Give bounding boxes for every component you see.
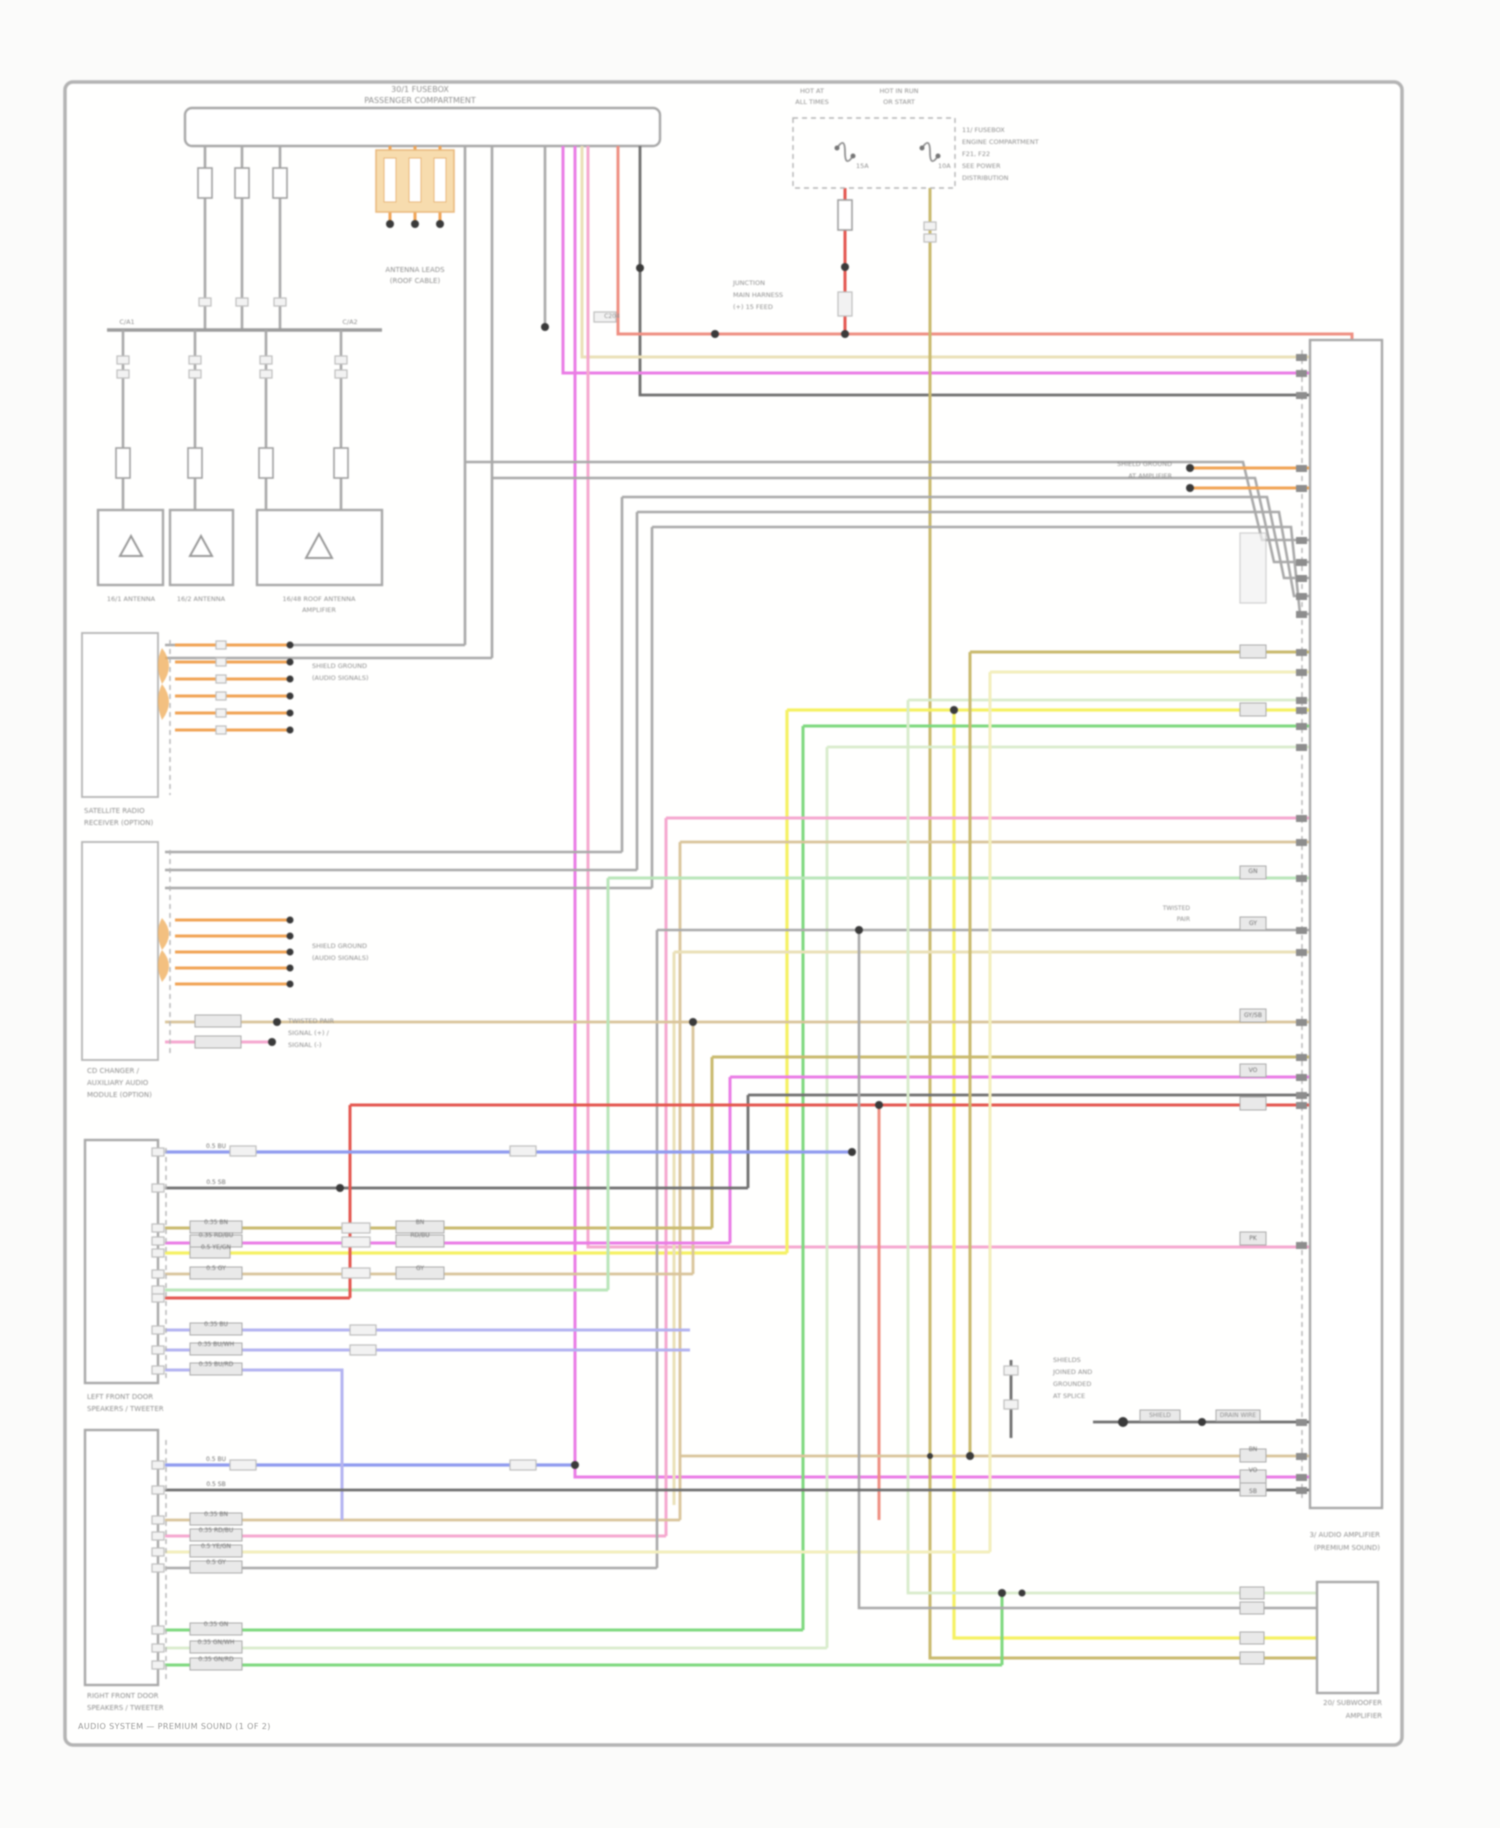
diagram-label-43: SHIELD — [1149, 1412, 1171, 1419]
audio-amplifier-box — [1310, 340, 1382, 1508]
diagram-label-26: HOT AT — [800, 87, 824, 95]
diagram-label-1: PASSENGER COMPARTMENT — [364, 96, 476, 105]
diagram-label-73: 0.35 GN — [204, 1621, 228, 1628]
fusebox-bus — [185, 108, 660, 146]
diagram-label-51: LEFT FRONT DOOR — [87, 1393, 153, 1401]
diagram-label-41: GROUNDED — [1053, 1380, 1091, 1388]
diagram-footer: AUDIO SYSTEM — PREMIUM SOUND (1 OF 2) — [78, 1722, 271, 1731]
diagram-label-57: 0.5 YE/GN — [201, 1244, 231, 1251]
diagram-label-10: SATELLITE RADIO — [84, 807, 145, 815]
diagram-label-60: 0.5 SB — [206, 1179, 225, 1186]
diagram-label-71: 0.5 YE/GN — [201, 1543, 231, 1550]
subwoofer-amplifier-box — [1317, 1582, 1378, 1693]
diagram-label-59: 0.5 BU — [206, 1143, 226, 1150]
diagram-label-64: 0.35 BU — [204, 1321, 228, 1328]
diagram-label-17: SHIELD GROUND — [312, 942, 367, 950]
diagram-label-29: OR START — [883, 98, 915, 106]
diagram-label-42: AT SPLICE — [1053, 1392, 1085, 1400]
diagram-label-7: 16/2 ANTENNA — [177, 595, 226, 603]
diagram-label-62: RD/BU — [410, 1232, 429, 1239]
diagram-label-16: MODULE (OPTION) — [87, 1091, 152, 1099]
diagram-label-79: VO — [1249, 1067, 1258, 1074]
antenna-1-box — [98, 510, 163, 585]
diagram-label-45: TWISTED — [1162, 905, 1191, 912]
diagram-label-54: SPEAKERS / TWEETER — [87, 1704, 164, 1712]
diagram-label-67: 0.5 BU — [206, 1456, 226, 1463]
diagram-label-14: CD CHANGER / — [87, 1067, 140, 1075]
diagram-label-22: JUNCTION — [732, 279, 765, 287]
diagram-label-82: VO — [1249, 1467, 1258, 1474]
diagram-label-25: C204 — [604, 313, 620, 320]
diagram-label-4: C/A1 — [119, 318, 134, 326]
diagram-label-50: AMPLIFIER — [1346, 1712, 1383, 1720]
diagram-label-38: AT AMPLIFIER — [1128, 472, 1172, 480]
diagram-label-11: RECEIVER (OPTION) — [84, 819, 154, 827]
wiring-diagram-canvas: 30/1 FUSEBOXPASSENGER COMPARTMENTANTENNA… — [0, 0, 1500, 1828]
diagram-label-21: SIGNAL (-) — [288, 1041, 322, 1049]
diagram-label-52: SPEAKERS / TWEETER — [87, 1405, 164, 1413]
diagram-label-44: DRAIN WIRE — [1220, 1412, 1257, 1419]
diagram-label-76: GN — [1248, 868, 1257, 875]
diagram-label-40: JOINED AND — [1052, 1368, 1092, 1376]
antenna-2-box — [170, 510, 233, 585]
right-door-speaker-box — [85, 1430, 158, 1685]
diagram-label-37: SHIELD GROUND — [1117, 460, 1172, 468]
satellite-receiver-box — [82, 633, 158, 797]
cd-changer-box — [82, 842, 158, 1060]
diagram-label-70: 0.35 RD/BU — [199, 1527, 234, 1534]
diagram-label-27: ALL TIMES — [795, 98, 828, 106]
diagram-label-58: 0.5 GY — [206, 1265, 226, 1272]
diagram-label-5: C/A2 — [342, 318, 357, 326]
diagram-label-83: SB — [1249, 1488, 1257, 1495]
diagram-label-81: BN — [1249, 1446, 1258, 1453]
diagram-label-19: TWISTED PAIR — [287, 1017, 334, 1025]
diagram-label-31: 10A — [938, 162, 951, 170]
diagram-label-39: SHIELDS — [1053, 1356, 1081, 1364]
diagram-label-8: 16/48 ROOF ANTENNA — [283, 595, 356, 603]
diagram-label-61: BN — [416, 1219, 425, 1226]
diagram-label-18: (AUDIO SIGNALS) — [312, 954, 369, 962]
diagram-label-56: 0.35 RD/BU — [199, 1232, 234, 1239]
diagram-label-3: (ROOF CABLE) — [390, 277, 441, 285]
roof-antenna-box — [257, 510, 382, 585]
left-door-speaker-box — [85, 1140, 158, 1383]
diagram-label-46: PAIR — [1177, 916, 1190, 923]
diagram-label-68: 0.5 SB — [206, 1481, 225, 1488]
diagram-label-6: 16/1 ANTENNA — [107, 595, 156, 603]
diagram-label-32: 11/ FUSEBOX — [962, 126, 1005, 134]
diagram-label-15: AUXILIARY AUDIO — [87, 1079, 149, 1087]
diagram-label-66: 0.35 BU/RD — [199, 1361, 234, 1368]
diagram-label-24: (+) 15 FEED — [733, 303, 773, 311]
diagram-label-77: GY — [1249, 920, 1257, 927]
diagram-label-47: 3/ AUDIO AMPLIFIER — [1309, 1531, 1380, 1539]
diagram-label-49: 20/ SUBWOOFER — [1323, 1699, 1382, 1707]
diagram-label-63: GY — [416, 1265, 424, 1272]
diagram-label-55: 0.35 BN — [204, 1219, 228, 1226]
diagram-label-36: DISTRIBUTION — [962, 174, 1009, 182]
diagram-label-2: ANTENNA LEADS — [385, 266, 445, 274]
diagram-label-34: F21, F22 — [962, 150, 990, 158]
diagram-label-9: AMPLIFIER — [302, 606, 336, 614]
diagram-label-80: PK — [1249, 1235, 1258, 1242]
diagram-label-23: MAIN HARNESS — [733, 291, 783, 299]
diagram-label-65: 0.35 BU/WH — [198, 1341, 234, 1348]
diagram-label-74: 0.35 GN/WH — [198, 1639, 235, 1646]
diagram-label-0: 30/1 FUSEBOX — [391, 85, 449, 94]
diagram-label-69: 0.35 BN — [204, 1511, 228, 1518]
diagram-label-53: RIGHT FRONT DOOR — [87, 1692, 159, 1700]
wiring-diagram-page: 30/1 FUSEBOXPASSENGER COMPARTMENTANTENNA… — [0, 0, 1500, 1828]
diagram-label-48: (PREMIUM SOUND) — [1314, 1544, 1380, 1552]
diagram-label-78: GY/SB — [1244, 1012, 1262, 1019]
diagram-label-20: SIGNAL (+) / — [288, 1029, 330, 1037]
diagram-label-13: (AUDIO SIGNALS) — [312, 674, 369, 682]
diagram-label-72: 0.5 GY — [206, 1559, 226, 1566]
diagram-label-35: SEE POWER — [962, 162, 1001, 170]
diagram-label-75: 0.35 GN/RD — [198, 1656, 234, 1663]
diagram-label-33: ENGINE COMPARTMENT — [962, 138, 1039, 146]
diagram-label-12: SHIELD GROUND — [312, 662, 367, 670]
diagram-label-28: HOT IN RUN — [879, 87, 918, 95]
diagram-label-30: 15A — [856, 162, 869, 170]
